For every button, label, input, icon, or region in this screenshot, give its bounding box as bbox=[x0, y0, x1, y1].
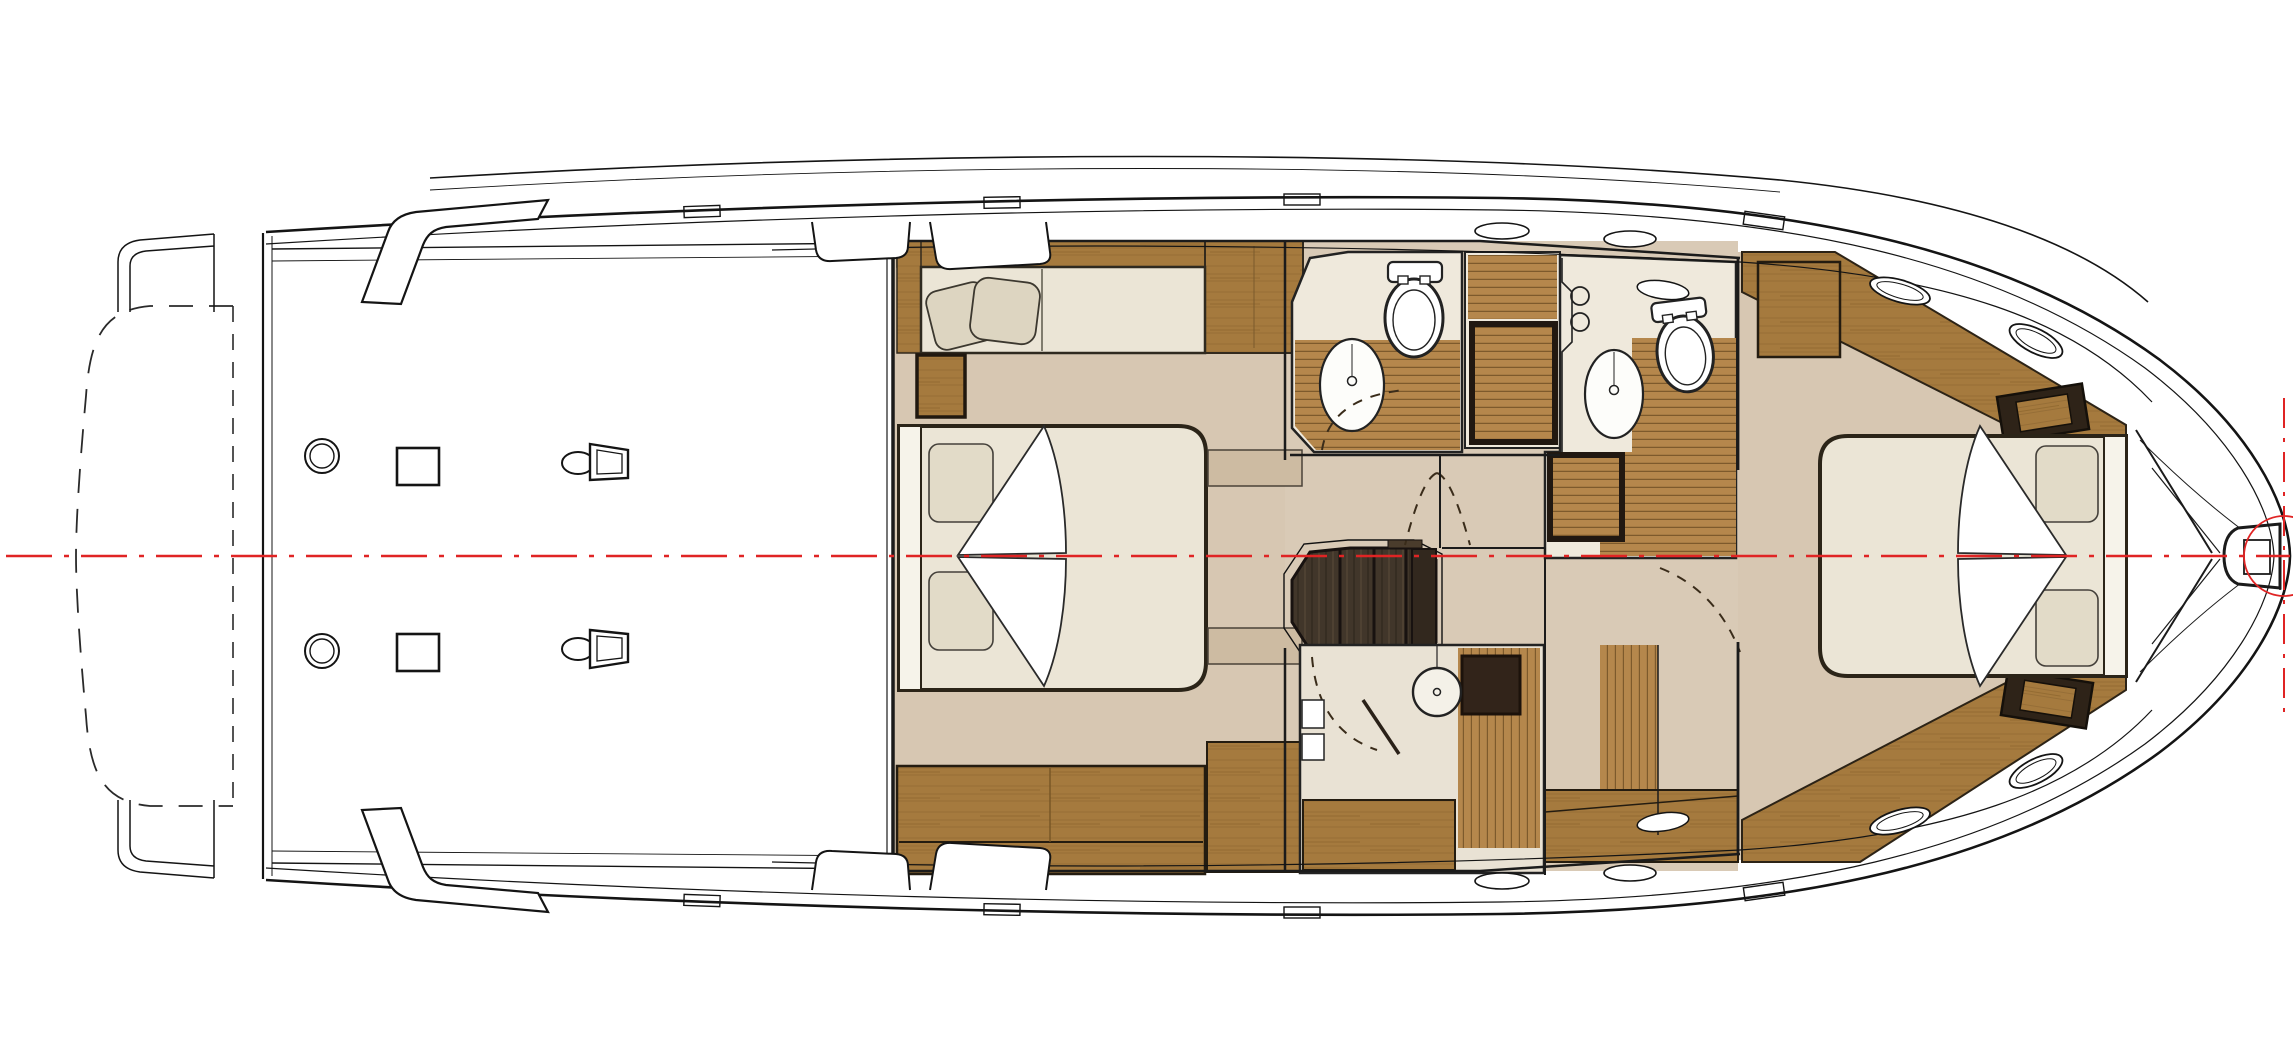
vanity-counter bbox=[1462, 656, 1520, 714]
deck-step-notch bbox=[812, 851, 910, 890]
deck-step-notch bbox=[812, 222, 910, 261]
shower-tray bbox=[1550, 455, 1622, 539]
transom-corner-step bbox=[118, 234, 214, 312]
starboard-head bbox=[1545, 255, 1736, 558]
wardrobe-block bbox=[1758, 262, 1840, 357]
deck-hatch-oval bbox=[1475, 223, 1529, 239]
deck-hatch-oval bbox=[1604, 865, 1656, 881]
cabinets bbox=[1303, 800, 1455, 870]
transom-corner-step bbox=[118, 800, 214, 878]
deck-step-notch bbox=[930, 843, 1050, 890]
deck-hatch-oval bbox=[1475, 873, 1529, 889]
mooring-cleat bbox=[562, 630, 628, 668]
toilet bbox=[1385, 262, 1443, 357]
floorplan-page bbox=[0, 0, 2293, 1043]
headboard bbox=[899, 426, 921, 690]
port-head bbox=[1292, 252, 1462, 452]
faucet bbox=[1571, 287, 1589, 305]
deck-step-notch bbox=[930, 222, 1050, 269]
mooring-cleat bbox=[562, 444, 628, 480]
settee-berth bbox=[921, 267, 1205, 353]
faucet bbox=[1571, 313, 1589, 331]
step-box bbox=[917, 355, 965, 417]
bedside-step bbox=[1208, 450, 1302, 486]
day-head bbox=[1300, 645, 1544, 873]
midship-shower bbox=[1465, 252, 1560, 448]
bed-pillow bbox=[2036, 446, 2098, 522]
sink bbox=[1585, 350, 1643, 438]
yacht-deck-plan bbox=[0, 0, 2293, 1043]
companionway-stairs bbox=[1284, 540, 1442, 662]
deck-hatch-square bbox=[397, 634, 439, 671]
owner-bed bbox=[899, 426, 1206, 690]
deck-hatch-square bbox=[397, 448, 439, 485]
shower-tray bbox=[1472, 324, 1555, 442]
deck-hatch-oval bbox=[1604, 231, 1656, 247]
sink bbox=[1320, 339, 1384, 431]
bed-pillow bbox=[929, 444, 993, 522]
bed-pillow bbox=[2036, 590, 2098, 666]
